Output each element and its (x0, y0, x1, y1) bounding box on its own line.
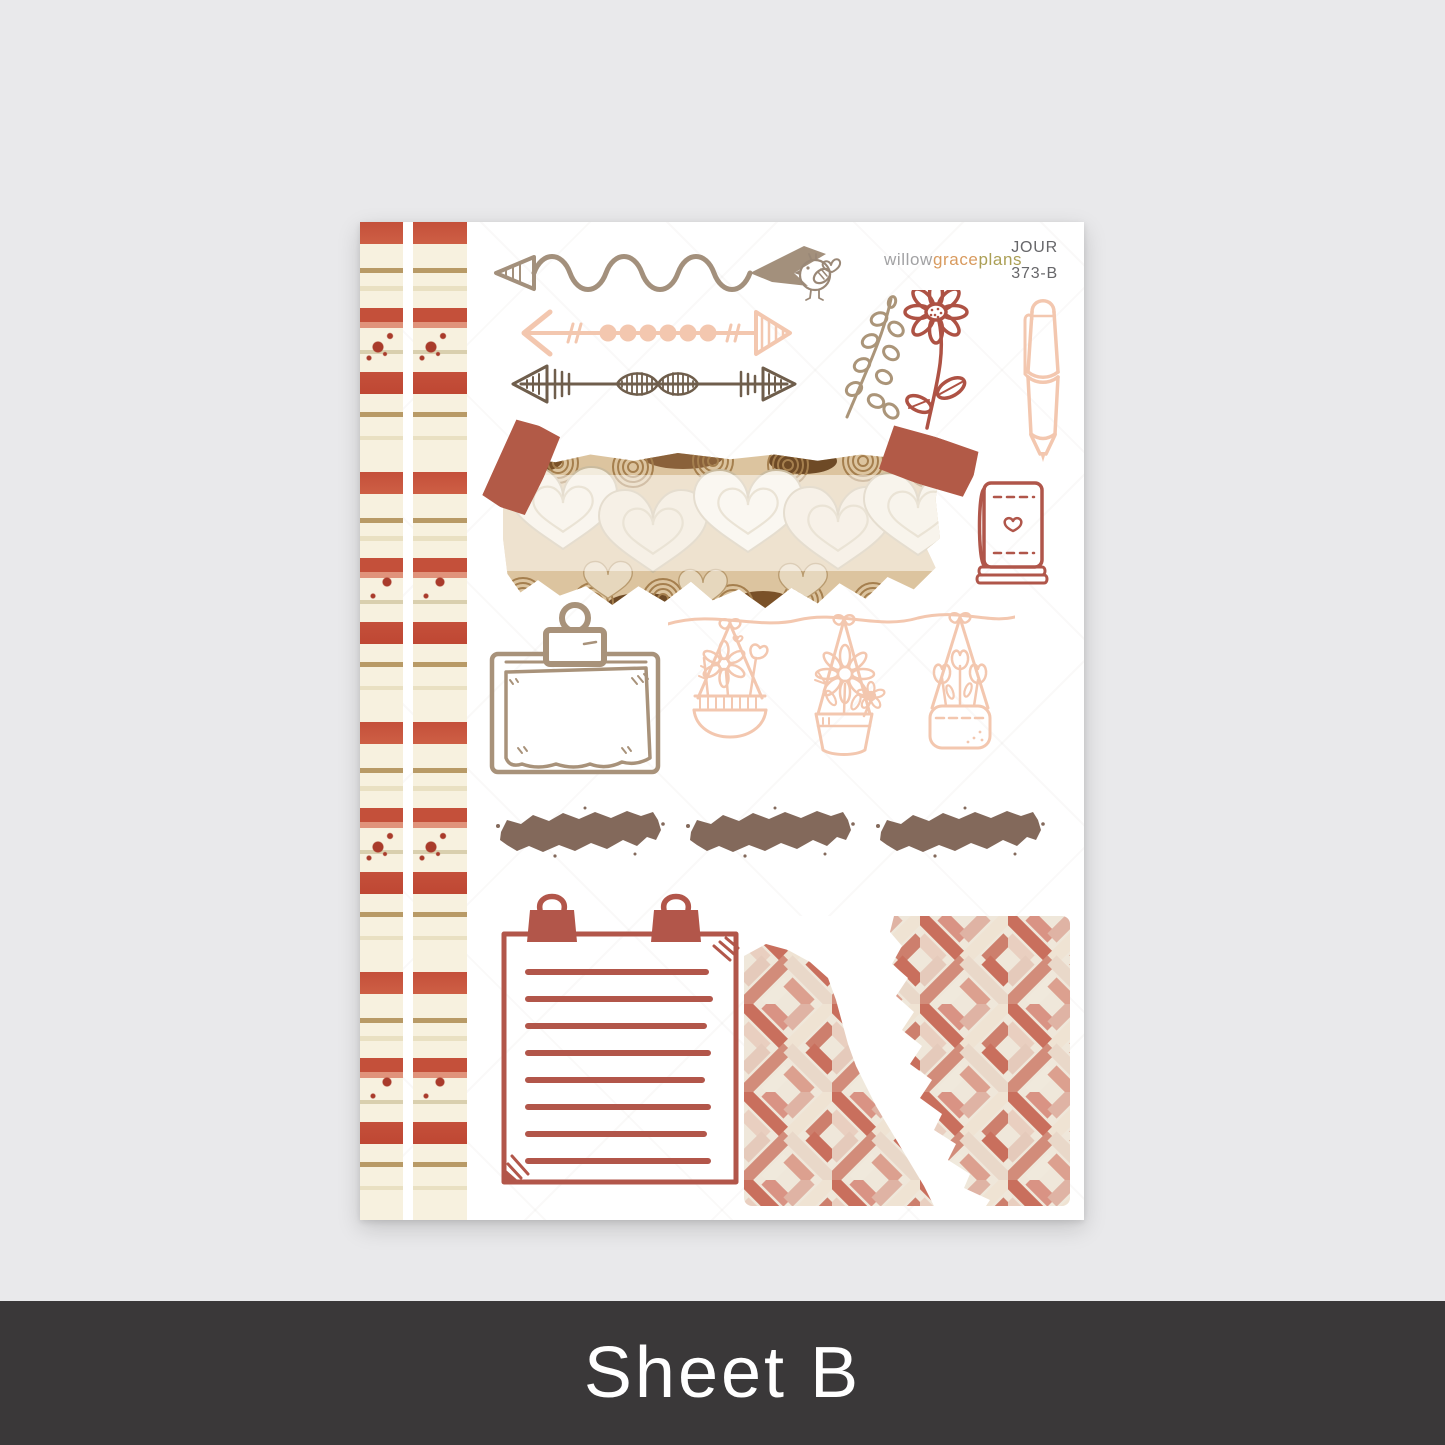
striped-washi-strip-left (360, 222, 403, 1220)
heart-wood-washi-sticker (503, 453, 940, 608)
herringbone-torn-paper-sticker (744, 916, 1070, 1206)
sticker-sheet: willowgraceplans JOUR 373-B (360, 222, 1084, 1220)
wavy-arrow-sticker (486, 242, 841, 304)
dotted-arrow-sticker (518, 305, 795, 360)
sheet-code-line1: JOUR (1011, 235, 1058, 261)
clipped-notepad-sticker (492, 888, 748, 1196)
brush-stroke-2 (685, 800, 855, 862)
sheet-label: Sheet B (584, 1332, 861, 1414)
sheet-code: JOUR 373-B (1011, 235, 1058, 287)
footer-bar: Sheet B (0, 1301, 1445, 1445)
brand-grace: grace (933, 250, 979, 269)
heart-journal-sticker (970, 477, 1052, 588)
striped-washi-strip-right (413, 222, 467, 1220)
sheet-code-line2: 373-B (1011, 261, 1058, 287)
tribal-arrow-sticker (505, 358, 800, 410)
brand-willow: willow (884, 250, 933, 269)
clipboard-sticker (486, 590, 666, 778)
eucalyptus-branch-sticker (833, 295, 905, 420)
hanging-baskets-sticker (668, 600, 1015, 768)
daisy-flower-sticker (898, 290, 978, 432)
pen-sticker (1015, 286, 1065, 464)
brush-stroke-1 (495, 800, 665, 862)
brand-text: willowgraceplans (884, 250, 1022, 270)
brush-stroke-3 (875, 800, 1045, 862)
product-image: { "page": { "background": "#e9e9eb" }, "… (0, 0, 1445, 1445)
